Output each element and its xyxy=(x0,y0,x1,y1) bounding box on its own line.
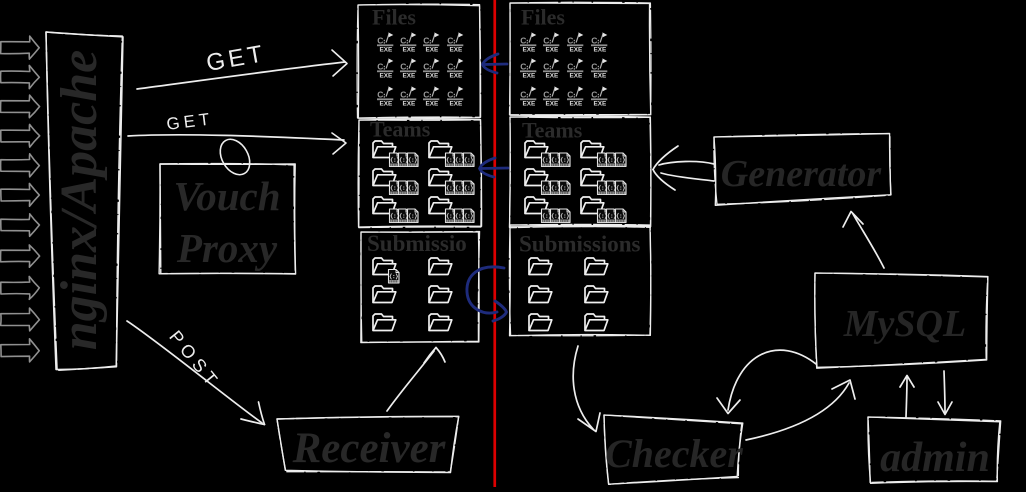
svg-text:Checker: Checker xyxy=(605,431,743,476)
svg-text:Submissions: Submissions xyxy=(519,232,641,257)
svg-text:Vouch: Vouch xyxy=(173,173,280,219)
svg-text:admin: admin xyxy=(880,435,990,481)
svg-text:Proxy: Proxy xyxy=(176,225,278,271)
svg-text:Files: Files xyxy=(372,5,416,30)
svg-text:Files: Files xyxy=(521,5,565,30)
svg-text:Teams: Teams xyxy=(370,117,431,142)
svg-text:Receiver: Receiver xyxy=(292,425,447,472)
svg-text:Generator: Generator xyxy=(721,153,883,195)
svg-text:nginx/Apache: nginx/Apache xyxy=(51,50,108,351)
svg-text:MySQL: MySQL xyxy=(843,303,966,345)
svg-text:Teams: Teams xyxy=(522,118,583,143)
svg-text:Submissio: Submissio xyxy=(367,231,467,256)
